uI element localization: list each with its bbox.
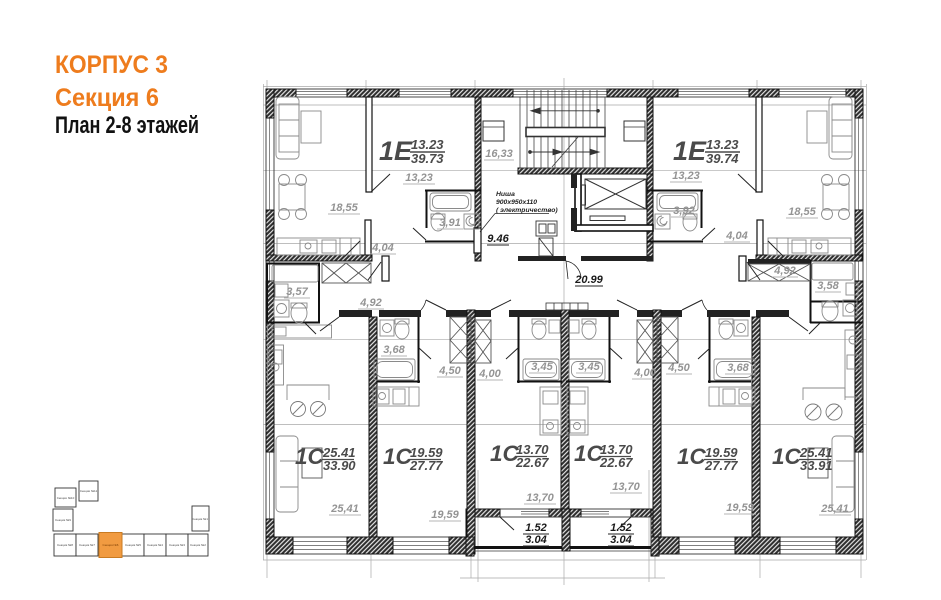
svg-text:3,68: 3,68 [383, 344, 405, 356]
svg-text:3,68: 3,68 [727, 362, 749, 374]
svg-text:1С: 1С [295, 444, 325, 469]
svg-text:13.23: 13.23 [411, 137, 444, 152]
svg-text:19,59: 19,59 [431, 509, 459, 521]
svg-text:Секция №8: Секция №8 [57, 543, 73, 547]
svg-text:18,55: 18,55 [788, 206, 816, 218]
svg-text:27.77: 27.77 [409, 458, 443, 473]
svg-text:22.67: 22.67 [599, 455, 633, 470]
svg-text:33.91: 33.91 [800, 458, 833, 473]
svg-text:Секция №3: Секция №3 [169, 543, 185, 547]
svg-text:13,23: 13,23 [405, 172, 433, 184]
svg-text:1С: 1С [772, 444, 802, 469]
svg-text:4,50: 4,50 [667, 362, 690, 374]
svg-text:13.23: 13.23 [706, 137, 739, 152]
svg-text:9.46: 9.46 [487, 233, 509, 245]
svg-text:900х950х110: 900х950х110 [496, 199, 537, 206]
svg-text:3,57: 3,57 [286, 286, 308, 298]
svg-text:13,70: 13,70 [612, 481, 640, 493]
svg-text:4,00: 4,00 [633, 367, 656, 379]
svg-text:4,92: 4,92 [773, 265, 795, 277]
svg-text:3,45: 3,45 [531, 361, 553, 373]
svg-text:Секция №5: Секция №5 [125, 543, 141, 547]
svg-text:16,33: 16,33 [485, 148, 513, 160]
svg-text:33.90: 33.90 [323, 458, 356, 473]
svg-text:КОРПУС 3: КОРПУС 3 [55, 51, 168, 79]
svg-text:4,00: 4,00 [478, 368, 501, 380]
svg-text:Секция №11: Секция №11 [80, 489, 98, 493]
svg-text:1.52: 1.52 [525, 522, 546, 534]
svg-text:19,59: 19,59 [726, 502, 754, 514]
svg-text:1С: 1С [383, 444, 413, 469]
svg-text:( электричество): ( электричество) [496, 207, 558, 214]
svg-text:Секция №9: Секция №9 [55, 518, 71, 522]
svg-text:3,58: 3,58 [817, 280, 839, 292]
svg-text:3,92: 3,92 [673, 205, 694, 217]
svg-text:4,92: 4,92 [359, 297, 381, 309]
svg-text:Ниша: Ниша [496, 191, 515, 198]
svg-text:25,41: 25,41 [820, 503, 849, 515]
svg-text:3.04: 3.04 [610, 534, 631, 546]
svg-text:Секция №4: Секция №4 [147, 543, 163, 547]
svg-text:Секция №10: Секция №10 [57, 496, 75, 500]
svg-text:27.77: 27.77 [704, 458, 738, 473]
svg-text:Секция №7: Секция №7 [79, 543, 95, 547]
svg-text:13,23: 13,23 [672, 170, 700, 182]
svg-text:Секция 6: Секция 6 [55, 84, 159, 112]
svg-text:25,41: 25,41 [330, 503, 359, 515]
svg-text:13,70: 13,70 [526, 492, 554, 504]
svg-text:Секция №6: Секция №6 [103, 543, 119, 547]
svg-text:4,50: 4,50 [438, 365, 461, 377]
svg-text:39.73: 39.73 [411, 151, 444, 166]
svg-text:3,91: 3,91 [439, 217, 460, 229]
svg-text:18,55: 18,55 [330, 202, 358, 214]
svg-text:20.99: 20.99 [574, 274, 603, 286]
svg-text:1Е: 1Е [379, 136, 413, 166]
svg-text:3.04: 3.04 [525, 534, 546, 546]
svg-text:Секция №2: Секция №2 [190, 543, 206, 547]
svg-text:4,04: 4,04 [725, 230, 747, 242]
svg-text:22.67: 22.67 [515, 455, 549, 470]
svg-text:1Е: 1Е [673, 136, 707, 166]
svg-text:4,04: 4,04 [371, 242, 393, 254]
svg-text:1С: 1С [677, 444, 707, 469]
svg-text:3,45: 3,45 [578, 361, 600, 373]
svg-text:Секция №1: Секция №1 [192, 517, 208, 521]
svg-text:39.74: 39.74 [706, 151, 739, 166]
svg-text:1.52: 1.52 [610, 522, 631, 534]
svg-text:План 2-8 этажей: План 2-8 этажей [55, 112, 199, 139]
